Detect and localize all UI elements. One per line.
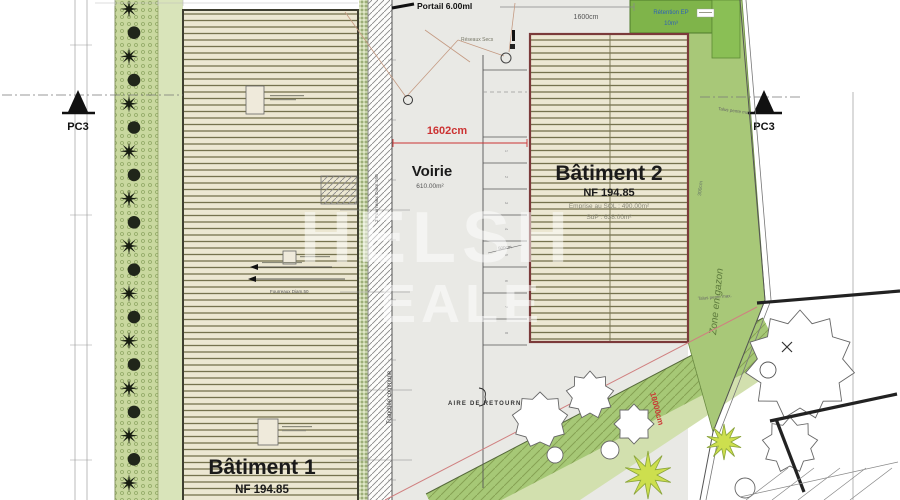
voirie-area: 610.00m² — [416, 183, 444, 190]
branch-box — [258, 419, 278, 445]
box-icon — [510, 44, 515, 49]
building-1-nf: NF 194.85 — [235, 484, 289, 496]
building-1-title: Bâtiment 1 — [208, 456, 316, 479]
svg-text:HELSH: HELSH — [300, 198, 574, 278]
building-2-emprise: Emprise au SOL : 490.00m² — [569, 203, 650, 210]
fourreaux-50-label: Fourreaux Diam.50 — [270, 289, 309, 294]
building-2-sdp: SdP : 638.00m² — [586, 214, 632, 221]
reseaux-secs-label: Réseaux Secs — [461, 37, 494, 43]
equipment-box — [246, 86, 264, 114]
building-2: Bâtiment 2 NF 194.85 Emprise au SOL : 49… — [530, 34, 688, 342]
voirie-title: Voirie — [412, 163, 453, 180]
svg-text:EALE: EALE — [380, 274, 544, 334]
site-plan-drawing: Fourreaux Diam.50 Bâtiment 1 NF 194.85 2… — [0, 0, 900, 500]
gate-label: Portail 6.00ml — [417, 1, 472, 11]
svg-text:1600cm: 1600cm — [574, 14, 599, 21]
trench-label: Tranchée commune — [387, 370, 393, 424]
site-plan-page: Fourreaux Diam.50 Bâtiment 1 NF 194.85 2… — [0, 0, 900, 500]
svg-text:1602cm: 1602cm — [427, 125, 468, 137]
retention-label-1: Rétention EP — [653, 10, 688, 16]
building-2-nf: NF 194.85 — [583, 187, 634, 199]
post-icon — [512, 30, 515, 41]
building-2-title: Bâtiment 2 — [555, 162, 662, 185]
landscape-strip-left — [115, 0, 183, 500]
svg-text:PC3: PC3 — [67, 121, 88, 133]
retention-label-2: 10m³ — [664, 21, 678, 27]
